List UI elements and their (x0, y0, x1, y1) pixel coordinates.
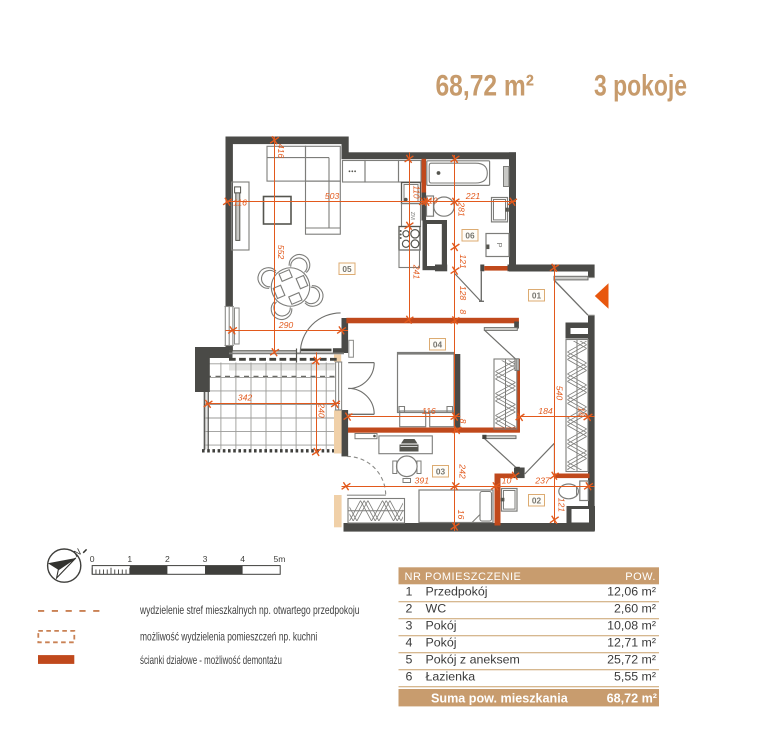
svg-text:6: 6 (406, 670, 413, 684)
svg-text:68,72 m²: 68,72 m² (436, 70, 535, 103)
svg-text:0: 0 (90, 554, 95, 564)
svg-text:możliwość wydzielenia pomieszc: możliwość wydzielenia pomieszczeń np. ku… (140, 629, 317, 643)
svg-text:16: 16 (577, 407, 587, 417)
svg-text:5m: 5m (274, 554, 286, 564)
svg-text:ścianki działowe - możliwość d: ścianki działowe - możliwość demontażu (140, 653, 282, 667)
svg-text:WC: WC (426, 602, 447, 616)
svg-text:121: 121 (556, 498, 566, 513)
svg-text:1: 1 (406, 585, 413, 599)
svg-text:241: 241 (412, 264, 422, 280)
svg-text:2: 2 (165, 554, 170, 564)
svg-text:03: 03 (436, 466, 446, 476)
svg-text:281: 281 (457, 201, 467, 217)
svg-text:Pokój: Pokój (426, 619, 457, 633)
svg-text:Pokój: Pokój (426, 636, 457, 650)
svg-text:1: 1 (127, 554, 132, 564)
svg-text:5: 5 (406, 653, 413, 667)
svg-text:221: 221 (465, 191, 481, 201)
svg-text:342: 342 (238, 393, 253, 403)
svg-text:12,71 m²: 12,71 m² (607, 636, 656, 650)
svg-text:NR: NR (405, 571, 422, 583)
svg-text:116: 116 (233, 197, 247, 207)
svg-text:128: 128 (458, 286, 468, 301)
svg-text:4: 4 (406, 636, 413, 650)
svg-text:02: 02 (532, 495, 542, 505)
svg-text:5,55 m²: 5,55 m² (614, 670, 656, 684)
svg-text:2: 2 (406, 602, 413, 616)
svg-text:416: 416 (276, 144, 286, 159)
svg-text:8: 8 (458, 309, 468, 314)
svg-text:116: 116 (422, 406, 436, 416)
svg-text:391: 391 (415, 476, 430, 486)
svg-text:3: 3 (406, 619, 413, 633)
svg-text:POW.: POW. (625, 571, 656, 583)
svg-text:3 pokoje: 3 pokoje (594, 70, 687, 103)
svg-text:110: 110 (424, 197, 437, 206)
svg-text:290: 290 (278, 320, 294, 330)
svg-text:12,06 m²: 12,06 m² (607, 585, 656, 599)
svg-text:8: 8 (458, 419, 468, 424)
svg-text:Suma pow. mieszkania: Suma pow. mieszkania (431, 691, 569, 705)
svg-text:10: 10 (502, 476, 512, 486)
svg-text:552: 552 (276, 245, 286, 260)
svg-text:2,60 m²: 2,60 m² (614, 602, 656, 616)
svg-text:04: 04 (433, 339, 443, 349)
svg-text:184: 184 (538, 406, 553, 416)
svg-text:Łazienka: Łazienka (426, 670, 476, 684)
svg-text:3: 3 (203, 554, 208, 564)
svg-text:P: P (495, 242, 504, 247)
svg-text:Przedpokój: Przedpokój (426, 585, 488, 599)
svg-text:10,08 m²: 10,08 m² (607, 619, 656, 633)
svg-text:05: 05 (342, 264, 352, 274)
svg-text:25,72 m²: 25,72 m² (607, 653, 656, 667)
svg-text:68,72 m²: 68,72 m² (607, 691, 657, 705)
svg-text:4: 4 (240, 554, 245, 564)
svg-text:237: 237 (534, 476, 551, 486)
svg-text:503: 503 (325, 191, 340, 201)
svg-text:121: 121 (458, 254, 468, 269)
svg-text:Pokój z aneksem: Pokój z aneksem (426, 653, 520, 667)
svg-text:240: 240 (317, 402, 327, 418)
svg-text:242: 242 (458, 463, 468, 479)
svg-text:16: 16 (456, 510, 466, 520)
svg-text:110: 110 (412, 185, 421, 198)
svg-text:ZM: ZM (409, 212, 415, 220)
svg-text:540: 540 (555, 386, 565, 401)
svg-text:06: 06 (465, 230, 475, 240)
svg-text:wydzielenie stref mieszkalnyc: wydzielenie stref mieszkalnych np. otwar… (139, 603, 359, 617)
svg-text:01: 01 (532, 290, 542, 300)
svg-text:POMIESZCZENIE: POMIESZCZENIE (425, 571, 521, 583)
